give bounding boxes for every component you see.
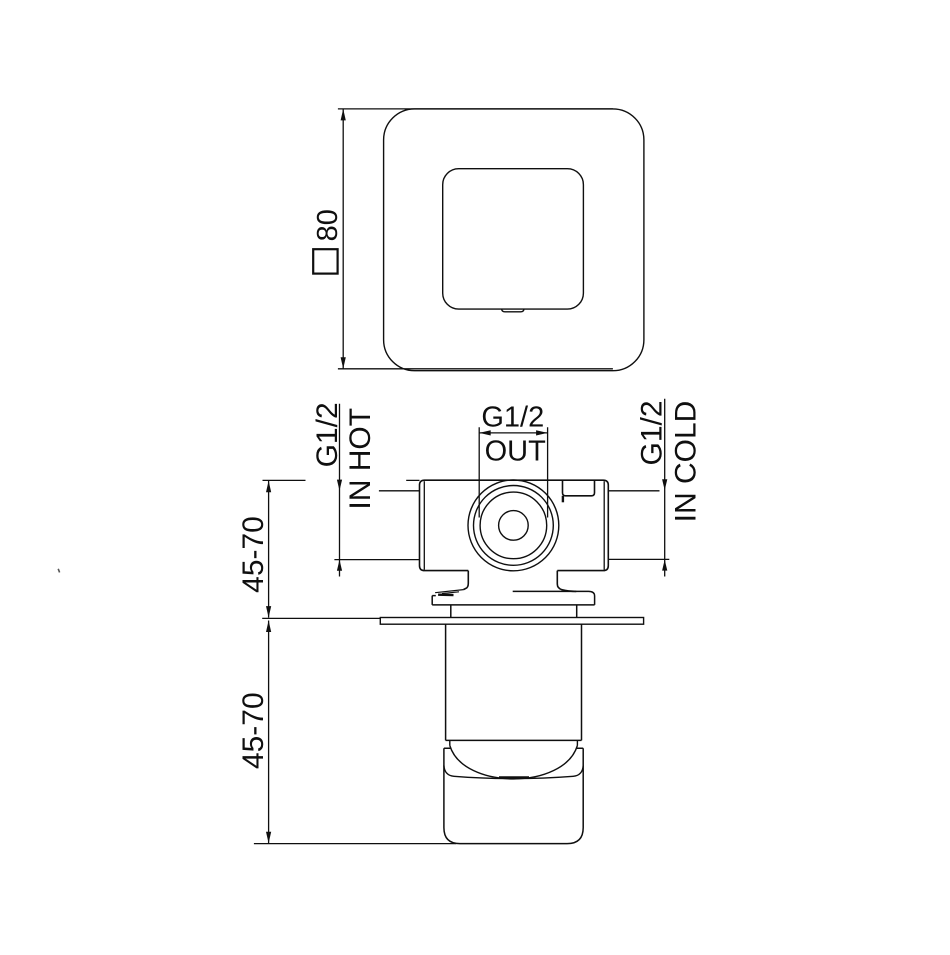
svg-text:IN HOT: IN HOT [344,408,377,510]
svg-text:OUT: OUT [485,435,547,467]
svg-text:45-70: 45-70 [237,516,270,593]
svg-text:IN COLD: IN COLD [670,401,703,523]
svg-text:80: 80 [312,209,344,241]
svg-text:45-70: 45-70 [237,692,270,769]
svg-text:G1/2: G1/2 [481,402,544,434]
svg-text:G1/2: G1/2 [636,400,669,465]
svg-text:G1/2: G1/2 [311,402,344,467]
